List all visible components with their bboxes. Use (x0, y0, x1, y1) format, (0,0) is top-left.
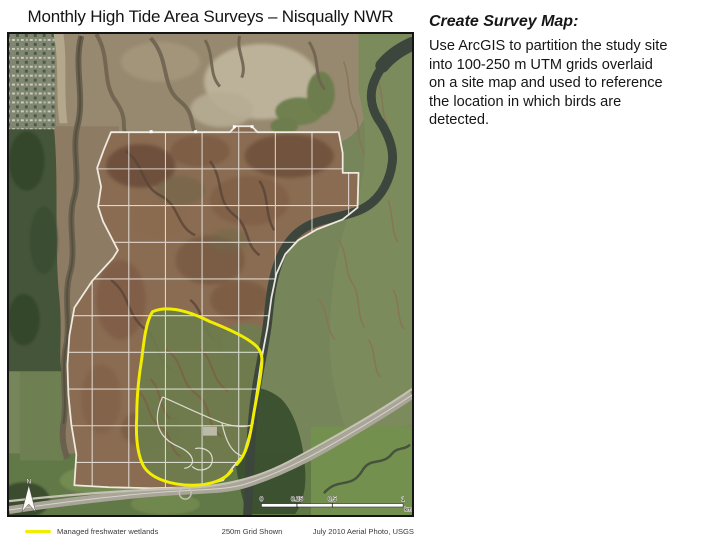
map-frame: N 0 0.25 0.5 1 km (7, 32, 414, 517)
scale-label-0: 0 (260, 496, 264, 503)
wetlands-line-swatch (25, 530, 51, 533)
instructions-panel: Create Survey Map: Use ArcGIS to partiti… (429, 13, 719, 130)
instruction-line: detected. (429, 111, 719, 130)
legend: Managed freshwater wetlands 250m Grid Sh… (7, 521, 414, 539)
instructions-heading: Create Survey Map: (429, 13, 719, 31)
instruction-line: on a site map and used to reference (429, 74, 719, 93)
scale-label-025: 0.25 (291, 496, 304, 503)
slide-title: Monthly High Tide Area Surveys – Nisqual… (7, 7, 414, 27)
instruction-line: the location in which birds are (429, 93, 719, 112)
aerial-map: N 0 0.25 0.5 1 km (9, 34, 412, 515)
scale-unit: km (405, 507, 412, 513)
photo-credit-label: July 2010 Aerial Photo, USGS (254, 527, 414, 536)
scale-label-05: 0.5 (328, 496, 337, 503)
slide: { "slide": { "title": "Monthly High Tide… (0, 0, 720, 540)
instruction-line: into 100-250 m UTM grids overlaid (429, 56, 719, 75)
scale-label-1: 1 (401, 496, 405, 503)
instruction-line: Use ArcGIS to partition the study site (429, 37, 719, 56)
creek-marsh (20, 369, 64, 460)
wetlands-label: Managed freshwater wetlands (57, 527, 158, 536)
north-label: N (26, 478, 31, 485)
residential-texture (9, 34, 56, 129)
